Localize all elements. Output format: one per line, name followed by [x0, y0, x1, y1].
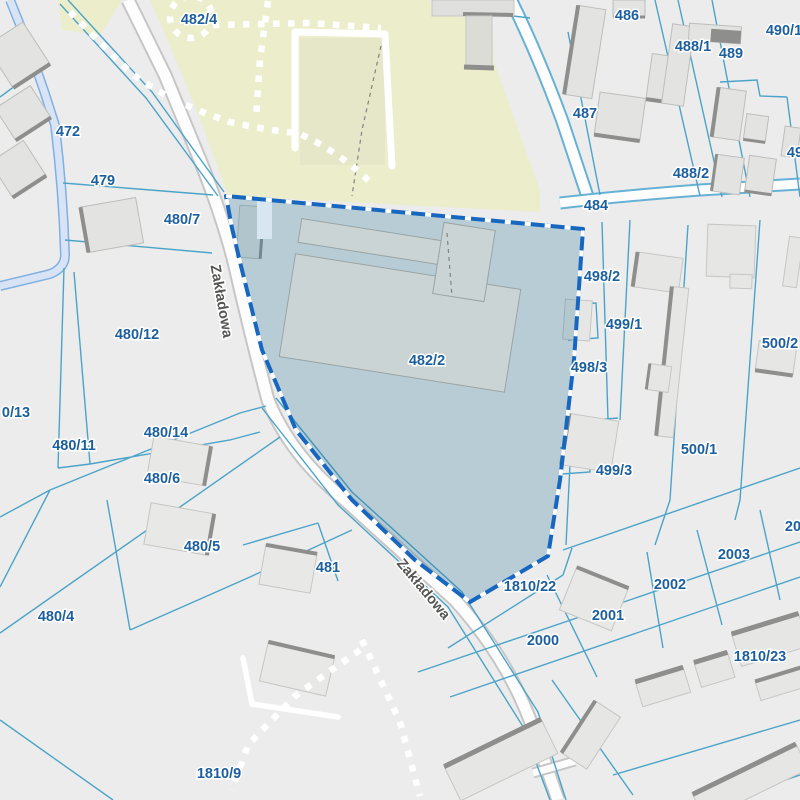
parcel-label-480-6: 480/6: [144, 471, 180, 487]
parcel-label-499-3: 499/3: [596, 463, 632, 479]
parcel-label-499-1: 499/1: [606, 317, 642, 333]
parcel-label-487: 487: [573, 106, 597, 122]
parcel-label-2003: 2003: [718, 547, 750, 563]
parcel-label-482-4: 482/4: [181, 12, 217, 28]
parcel-label-480-4: 480/4: [38, 609, 74, 625]
parcel-label-479: 479: [91, 173, 115, 189]
park-inner-field: [300, 38, 385, 165]
parcel-label-498-3: 498/3: [571, 360, 607, 376]
parcel-label-480-11: 480/11: [52, 438, 96, 454]
parcel-label-0-13: 0/13: [2, 405, 30, 421]
parcel-label-482-2: 482/2: [409, 353, 445, 369]
parcel-label-481: 481: [316, 560, 340, 576]
parcel-label-2000: 2000: [527, 633, 559, 649]
path-notch: [257, 197, 272, 239]
parcel-label-490-1: 490/1: [766, 23, 800, 39]
parcel-label-480-14: 480/14: [144, 425, 188, 441]
parcel-label-1810-22: 1810/22: [504, 579, 556, 595]
parcel-label-486: 486: [615, 8, 639, 24]
parcel-label-2002: 2002: [654, 577, 686, 593]
parcel-label-480-12: 480/12: [115, 327, 159, 343]
parcel-label-1810-23: 1810/23: [734, 649, 786, 665]
parcel-label-1810-9: 1810/9: [197, 766, 241, 782]
parcel-label-488-1: 488/1: [675, 39, 711, 55]
parcel-label-500-2: 500/2: [762, 336, 798, 352]
map-canvas[interactable]: Zakładowa Zakładowa 482/4 472 479 480/7 …: [0, 0, 800, 800]
parcel-label-480-7: 480/7: [164, 212, 200, 228]
parcel-label-500-1: 500/1: [681, 442, 717, 458]
map-layers: Zakładowa Zakładowa 482/4 472 479 480/7 …: [0, 0, 800, 800]
parcel-label-498-2: 498/2: [584, 269, 620, 285]
parcel-label-2001: 2001: [592, 608, 624, 624]
parcel-label-480-5: 480/5: [184, 539, 220, 555]
parcel-label-472: 472: [56, 124, 80, 140]
parcel-label-484: 484: [584, 198, 608, 214]
parcel-label-200-partial: 200: [785, 519, 800, 535]
parcel-label-489: 489: [719, 46, 743, 62]
parcel-label-488-2: 488/2: [673, 166, 709, 182]
parcel-label-49-partial: 49: [787, 145, 800, 161]
